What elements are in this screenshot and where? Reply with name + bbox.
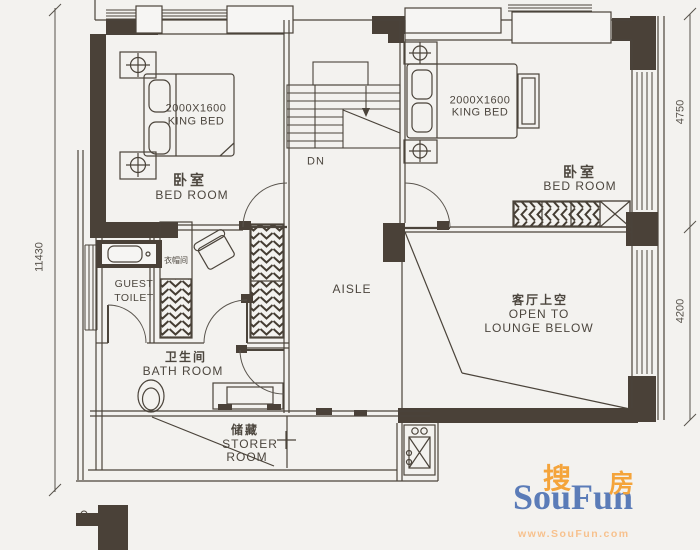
bed-right-type-label: KING BED xyxy=(452,108,509,119)
bed-end-bench xyxy=(518,74,539,128)
cloakroom-label: 衣帽间 xyxy=(164,257,188,265)
storeroom-zh-label: 储藏 xyxy=(231,424,259,436)
lamp-icon xyxy=(409,42,431,64)
wardrobe xyxy=(250,224,284,338)
staircase xyxy=(287,62,400,148)
bed-right-size-label: 2000X1600 xyxy=(450,96,511,107)
guest-toilet-label-line2: TOILET xyxy=(114,293,154,304)
wardrobe xyxy=(160,222,192,338)
bedroom-left-en-label: BED ROOM xyxy=(155,189,228,201)
toilet xyxy=(138,380,164,412)
bedroom-right-furniture xyxy=(404,42,630,227)
pillow xyxy=(412,70,432,99)
aisle-label: AISLE xyxy=(332,283,371,295)
dimension-left-total: 11430 xyxy=(35,242,46,272)
window-hatch-left xyxy=(85,245,97,330)
vanity xyxy=(213,383,283,410)
dimension-right-upper: 4750 xyxy=(676,100,687,124)
dimension-right-lower: 4200 xyxy=(676,299,687,323)
storeroom-en-label-line1: STORER xyxy=(222,438,278,450)
bed-left-type-label: KING BED xyxy=(168,117,225,128)
lamp-icon xyxy=(126,153,150,177)
lounge-void-en-label-line1: OPEN TO xyxy=(509,308,570,320)
soufun-cn-char2: 房 xyxy=(609,472,634,497)
utility-sink-unit xyxy=(404,425,435,475)
bathroom-zh-label: 卫生间 xyxy=(165,351,207,363)
bed-left-size-label: 2000X1600 xyxy=(166,104,227,115)
lounge-void-en-label-line2: LOUNGE BELOW xyxy=(484,322,593,334)
chair xyxy=(193,228,237,271)
storeroom-en-label-line2: ROOM xyxy=(226,451,267,463)
lamp-icon xyxy=(409,140,431,162)
bathroom-en-label: BATH ROOM xyxy=(143,365,224,377)
soufun-logo: SouFun 搜 房 www.SouFun.com xyxy=(513,465,673,545)
stair-dn-label: DN xyxy=(307,157,325,168)
door-guest-toilet xyxy=(108,305,146,343)
door-bedroom-left xyxy=(239,183,287,230)
dresser xyxy=(513,201,630,227)
guest-toilet-sink xyxy=(96,240,162,268)
soufun-url-text: www.SouFun.com xyxy=(518,529,630,540)
door-bedroom-right xyxy=(405,183,450,230)
bedroom-right-en-label: BED ROOM xyxy=(543,180,616,192)
pillow xyxy=(412,103,432,132)
soufun-cn-char1: 搜 xyxy=(543,466,571,494)
lamp-icon xyxy=(126,53,150,77)
bedroom-right-zh-label: 卧室 xyxy=(563,165,597,179)
floorplan-canvas: 2000X1600 KING BED 卧室 BED ROOM 2000X1600… xyxy=(0,0,700,550)
lounge-void-zh-label: 客厅上空 xyxy=(512,294,568,306)
door-bathroom-inner xyxy=(204,294,253,343)
guest-toilet-label-line1: GUEST xyxy=(115,279,154,290)
stair-break-line xyxy=(343,110,400,133)
bedroom-left-zh-label: 卧室 xyxy=(173,173,207,187)
